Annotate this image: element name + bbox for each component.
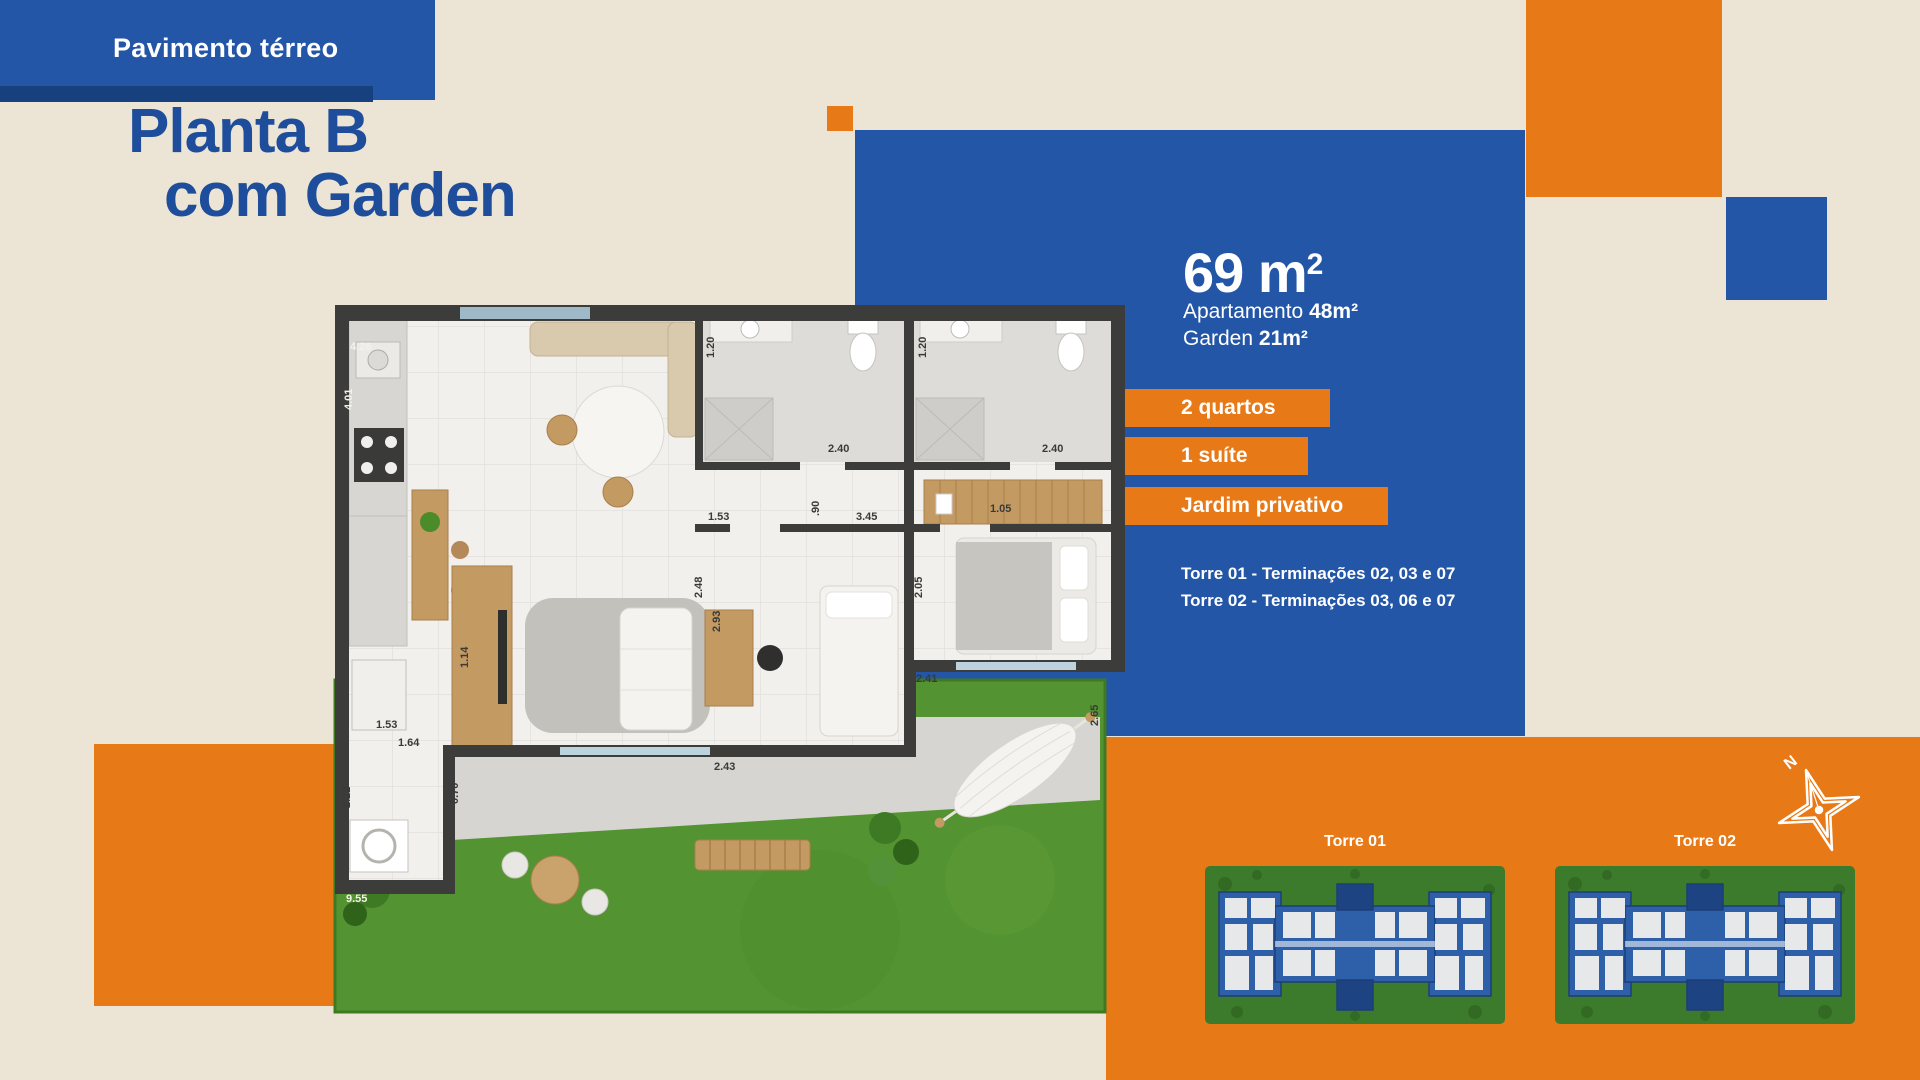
measurement-label: 3.45	[856, 511, 877, 523]
measurement-label: 2.48	[693, 577, 705, 598]
decor-blue-square-right	[1726, 197, 1827, 300]
measurement-label: 2.40	[828, 443, 849, 455]
measurement-label: 1.53	[708, 511, 729, 523]
measurement-label: 1.14	[459, 646, 471, 668]
measurement-label: 2.22	[341, 787, 353, 808]
tower1-label: Torre 01	[1205, 833, 1505, 851]
measurement-label: 2.65	[1089, 705, 1101, 726]
blanket	[956, 542, 1052, 650]
compass-rose-icon: N	[1757, 742, 1882, 867]
garden-area: Garden 21m²	[1183, 327, 1308, 351]
floorplan-image: 4.264.011.201.202.402.401.53.903.451.052…	[300, 280, 1130, 1020]
desk-chair	[757, 645, 783, 671]
kitchen-window	[460, 307, 590, 319]
tower-terminations: Torre 01 - Terminações 02, 03 e 07 Torre…	[1181, 560, 1455, 614]
garden-bench	[695, 840, 810, 870]
measurement-label: 2.05	[913, 577, 925, 598]
total-area-value: 69 m2	[1183, 240, 1322, 305]
garden-chair	[502, 852, 528, 878]
measurement-label: 2.40	[1042, 443, 1063, 455]
badge-private-garden: Jardim privativo	[1125, 487, 1388, 525]
tower1-siteplan	[1205, 862, 1505, 1027]
sofa	[620, 608, 692, 730]
measurement-label: 9.55	[346, 893, 367, 905]
page-title-line2: com Garden	[164, 164, 516, 228]
badge-suite: 1 suíte	[1125, 437, 1308, 475]
tower2-terminations: Torre 02 - Terminações 03, 06 e 07	[1181, 587, 1455, 614]
apartment-area: Apartamento 48m²	[1183, 300, 1358, 324]
nightstand	[936, 494, 952, 514]
measurement-label: 1.05	[990, 503, 1011, 515]
measurement-label: .90	[810, 501, 822, 516]
measurement-label: 2.93	[711, 611, 723, 632]
page-title-line1: Planta B	[128, 97, 368, 166]
measurement-label: 2.41	[916, 673, 937, 685]
kitchen-island	[412, 490, 448, 620]
measurement-label: 4.26	[350, 341, 371, 353]
decor-orange-square-small	[827, 106, 853, 131]
measurement-label: 1.64	[398, 737, 420, 749]
suite-glass-door	[956, 662, 1076, 670]
tv	[498, 610, 507, 704]
washer	[350, 820, 408, 872]
measurement-label: 1.20	[917, 337, 929, 358]
measurement-label: 1.20	[705, 337, 717, 358]
measurement-label: 2.43	[714, 761, 735, 773]
badge-bedrooms: 2 quartos	[1125, 389, 1330, 427]
decor-orange-square-topright	[1526, 0, 1722, 197]
tower2-siteplan	[1555, 862, 1855, 1027]
measurement-label: 4.01	[343, 389, 355, 410]
measurement-label: 1.53	[376, 719, 397, 731]
measurement-label: 0.70	[449, 783, 461, 804]
compass-north-label: N	[1781, 753, 1801, 774]
slide: Pavimento térreo Planta Bcom Garden 69 m…	[0, 0, 1920, 1080]
page-title: Planta Bcom Garden	[128, 100, 516, 228]
tower1-terminations: Torre 01 - Terminações 02, 03 e 07	[1181, 560, 1455, 587]
living-glass-door	[560, 747, 710, 755]
dining-table	[572, 386, 664, 478]
garden-table	[531, 856, 579, 904]
floor-banner-label: Pavimento térreo	[113, 33, 338, 64]
garden-chair	[582, 889, 608, 915]
area-superscript: 2	[1307, 248, 1323, 281]
